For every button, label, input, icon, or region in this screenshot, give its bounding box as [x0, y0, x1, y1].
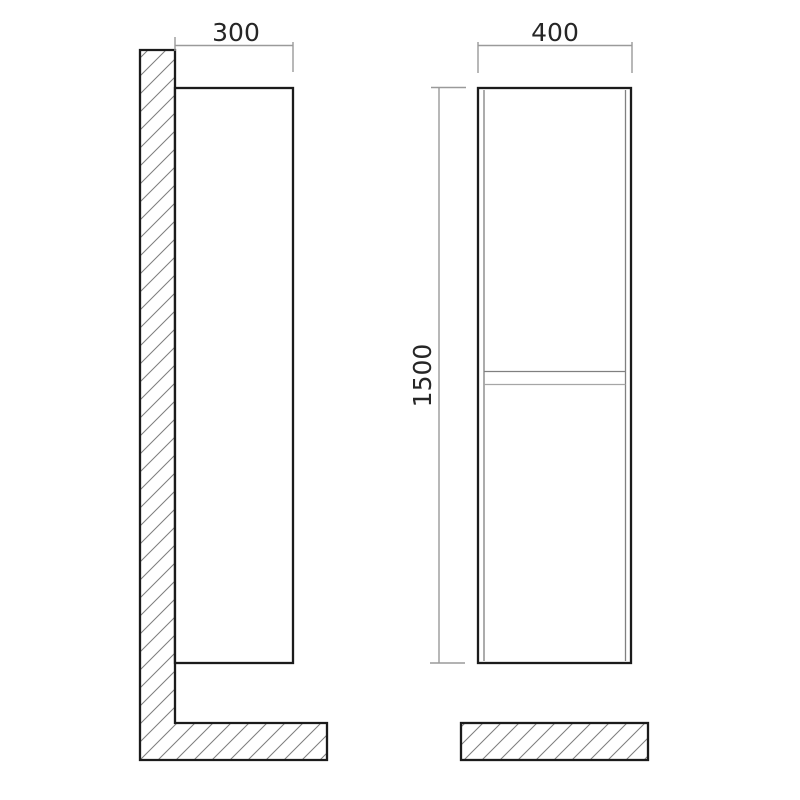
dimension-width: 400 — [478, 18, 632, 73]
dimension-depth: 300 — [175, 18, 293, 72]
floor-section — [461, 723, 648, 760]
front-view: 400 1500 — [408, 18, 648, 760]
cabinet-front-panel — [478, 88, 631, 663]
technical-drawing: 300 400 — [0, 0, 800, 800]
dimension-height-label: 1500 — [408, 344, 437, 408]
cabinet-side-panel — [175, 88, 293, 663]
dimension-height: 1500 — [408, 88, 466, 664]
drawing-canvas: 300 400 — [0, 0, 800, 800]
side-view: 300 — [140, 18, 327, 760]
dimension-width-label: 400 — [531, 18, 579, 47]
dimension-depth-label: 300 — [212, 18, 260, 47]
